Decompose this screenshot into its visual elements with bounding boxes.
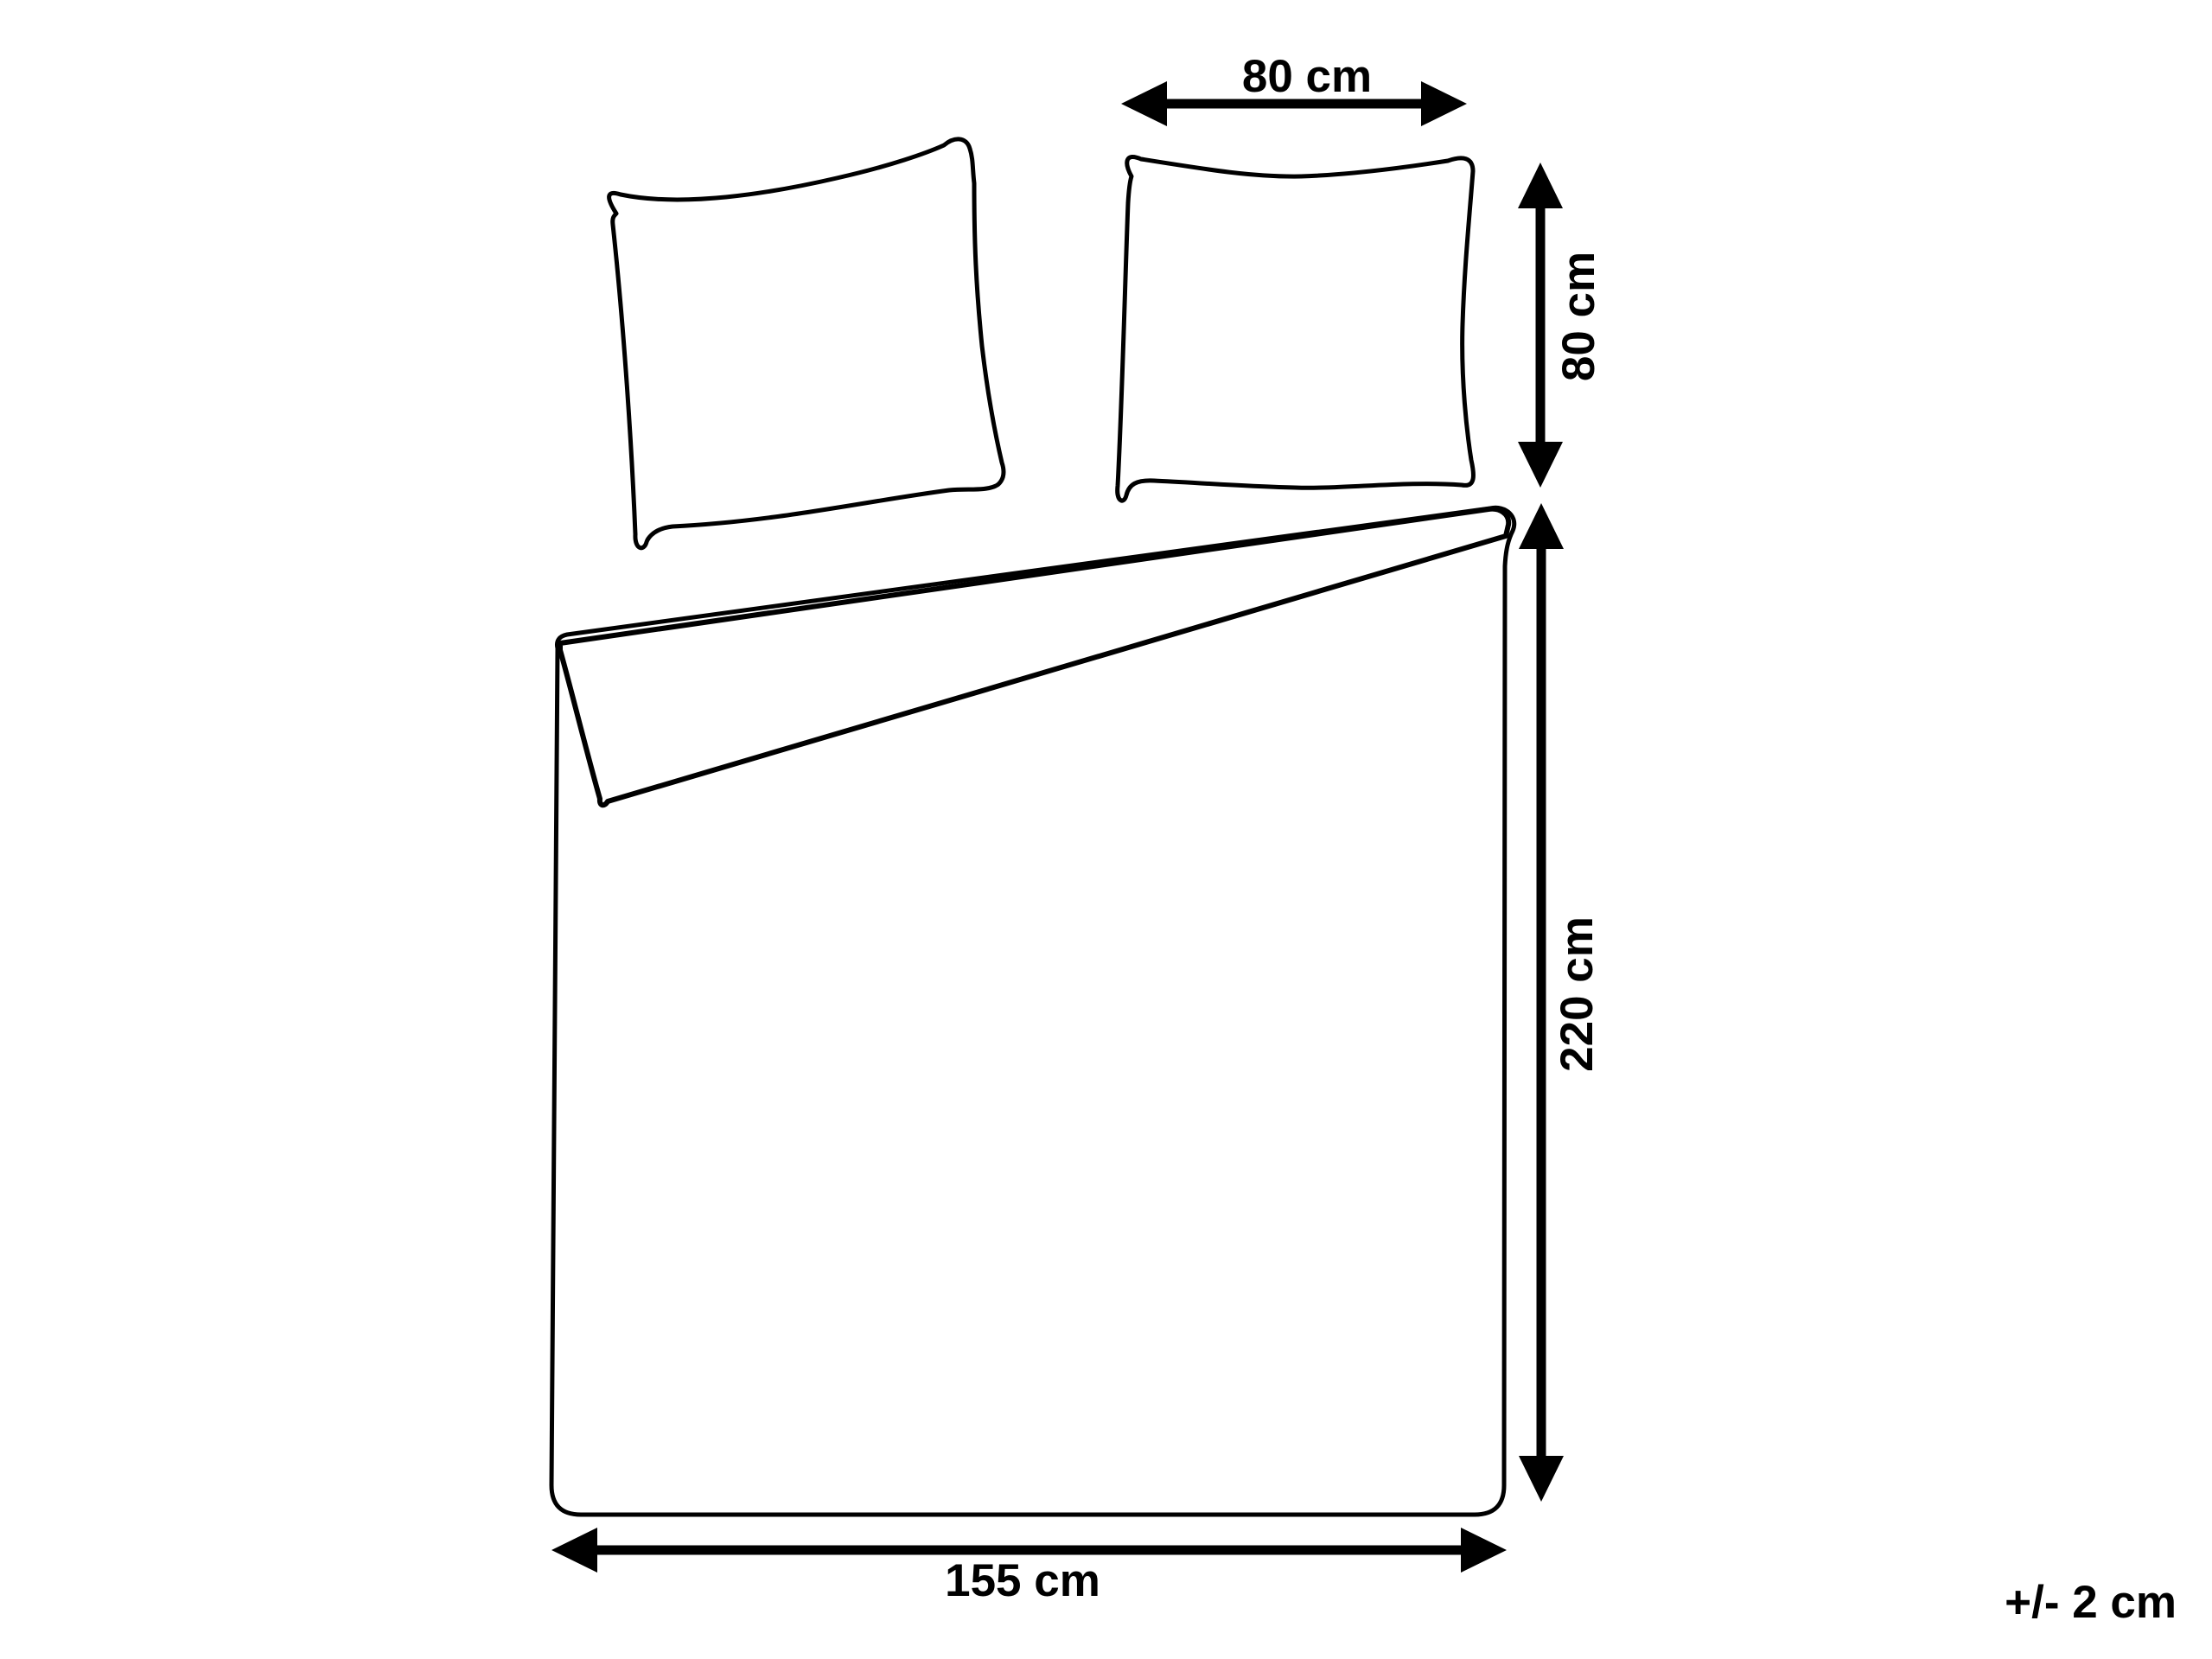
duvet-length-label: 220 cm: [1552, 916, 1603, 1072]
duvet-width-dimension: 155 cm: [551, 1528, 1507, 1606]
duvet-length-dimension: 220 cm: [1519, 503, 1603, 1502]
arrow-right-icon: [1421, 81, 1467, 126]
pillow-height-dimension: 80 cm: [1518, 163, 1604, 488]
right-pillow: [1118, 156, 1474, 501]
pillow-height-label: 80 cm: [1553, 252, 1604, 381]
bedding-dimensions-diagram: 80 cm 80 cm 220 cm 155 cm +/- 2 cm: [0, 0, 2212, 1659]
tolerance-note: +/- 2 cm: [2005, 1577, 2177, 1628]
duvet-width-label: 155 cm: [945, 1555, 1100, 1606]
arrow-up-icon: [1519, 503, 1564, 549]
arrow-down-icon: [1518, 442, 1563, 488]
diagram-canvas: 80 cm 80 cm 220 cm 155 cm +/- 2 cm: [0, 0, 2212, 1659]
pillow-width-dimension: 80 cm: [1121, 51, 1467, 126]
arrow-down-icon: [1519, 1456, 1564, 1502]
arrow-up-icon: [1518, 163, 1563, 208]
arrow-left-icon: [1121, 81, 1167, 126]
pillow-width-label: 80 cm: [1242, 51, 1372, 102]
arrow-left-icon: [551, 1528, 597, 1573]
left-pillow: [609, 139, 1004, 548]
arrow-right-icon: [1461, 1528, 1507, 1573]
